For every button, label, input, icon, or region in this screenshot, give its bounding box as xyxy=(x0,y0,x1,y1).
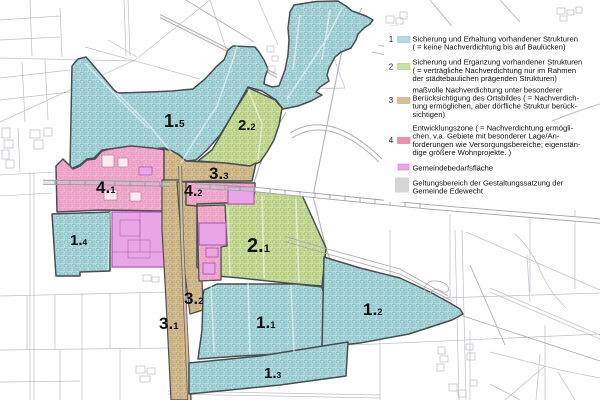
svg-text:2: 2 xyxy=(389,63,394,72)
svg-text:Gemeindebedarfsfläche: Gemeindebedarfsfläche xyxy=(413,163,494,172)
svg-text:( = keine Nachverdichtung bis: ( = keine Nachverdichtung bis auf Baulüc… xyxy=(413,42,566,51)
svg-text:Gemeinde Edewecht: Gemeinde Edewecht xyxy=(413,187,484,196)
svg-text:3: 3 xyxy=(389,96,394,105)
svg-text:dige größere Wohnprojekte. ): dige größere Wohnprojekte. ) xyxy=(413,148,512,157)
svg-text:4: 4 xyxy=(389,136,394,145)
svg-text:sichtigen): sichtigen) xyxy=(413,110,446,119)
svg-text:1: 1 xyxy=(389,35,394,44)
svg-text:der städtebaulichen prägenden: der städtebaulichen prägenden Strukturen… xyxy=(413,74,558,83)
